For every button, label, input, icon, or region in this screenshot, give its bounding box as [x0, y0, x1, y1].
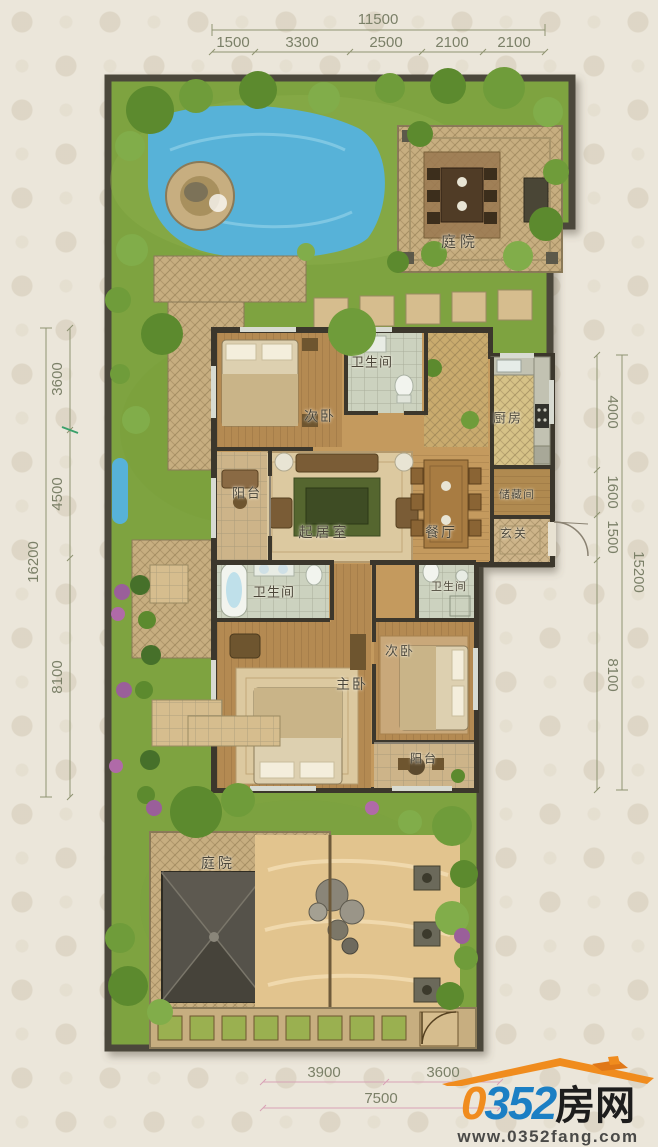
dim-left-seg: 4500 — [49, 477, 66, 510]
armchair — [270, 498, 292, 528]
sofa — [296, 454, 378, 472]
dim-right-total: 15200 — [630, 551, 647, 593]
balcony-mid — [217, 452, 267, 562]
logo-url: www.0352fang.com — [440, 1127, 656, 1147]
dimensions-top: 11500 1500 3300 2500 2100 2100 — [209, 11, 548, 55]
dresser — [350, 634, 366, 670]
room-label-balcony-mid: 阳台 — [232, 483, 262, 502]
armchair — [230, 634, 260, 658]
entrance-door — [548, 522, 588, 556]
stream — [112, 458, 128, 524]
room-label-bedroom-upper: 次卧 — [304, 406, 336, 426]
dim-right-seg: 8100 — [604, 658, 621, 691]
master-bedroom — [217, 622, 371, 788]
room-label-bath-upper: 卫生间 — [351, 352, 393, 371]
room-label-balcony-lower: 阳台 — [410, 750, 438, 767]
bottom-walkway — [150, 1008, 476, 1048]
dim-top-seg: 3300 — [285, 34, 318, 51]
logo-text: 00352352房网 — [440, 1080, 656, 1126]
watermark-logo: 00352352房网 www.0352fang.com — [440, 1056, 656, 1147]
sand-garden — [255, 835, 460, 1007]
stove — [535, 404, 549, 428]
dim-left-total: 16200 — [25, 541, 42, 583]
garden-gate — [420, 1012, 458, 1046]
stone-platforms — [414, 866, 440, 1002]
dimensions-left: 16200 3600 4500 8100 — [25, 325, 78, 800]
dim-right-seg: 1500 — [604, 520, 621, 553]
room-label-bath-lower-right: 卫生间 — [431, 578, 467, 594]
fridge — [534, 446, 550, 464]
dim-left-seg: 3600 — [49, 362, 66, 395]
fountain-rock — [184, 182, 208, 202]
room-label-courtyard-bottom: 庭院 — [201, 853, 235, 873]
room-label-kitchen: 厨房 — [493, 408, 523, 427]
room-label-bedroom-lower: 次卧 — [385, 641, 415, 660]
dim-right-seg: 1600 — [604, 475, 621, 508]
dimensions-right: 4000 1600 1500 8100 15200 — [594, 352, 647, 793]
side-table — [395, 453, 413, 471]
dim-top-seg: 1500 — [216, 34, 249, 51]
room-label-entry-hall: 玄关 — [500, 525, 528, 542]
room-label-storage: 储藏间 — [499, 486, 535, 502]
floor-plan-page: 11500 1500 3300 2500 2100 2100 16200 360… — [0, 0, 658, 1132]
logo-zero: 0 — [461, 1077, 485, 1129]
dim-top-seg: 2500 — [369, 34, 402, 51]
kitchen-sink — [497, 360, 521, 372]
pavilion — [162, 872, 266, 1002]
dim-top-seg: 2100 — [435, 34, 468, 51]
dim-left-seg: 8100 — [49, 660, 66, 693]
coffee-table — [306, 488, 368, 524]
outdoor-dining-set — [424, 152, 500, 238]
toilet — [395, 375, 413, 397]
floor-plan-graphic: 11500 1500 3300 2500 2100 2100 16200 360… — [0, 0, 658, 1132]
side-table — [275, 453, 293, 471]
logo-suffix: 房网 — [555, 1083, 635, 1129]
room-label-living-room: 起居室 — [299, 522, 350, 542]
toilet — [306, 565, 322, 585]
dim-bottom-seg: 3900 — [307, 1064, 340, 1081]
logo-352: 352 — [484, 1077, 555, 1129]
dim-top-total: 11500 — [358, 11, 399, 28]
room-label-bath-lower-left: 卫生间 — [253, 582, 295, 601]
dim-top-seg: 2100 — [497, 34, 530, 51]
dim-right-seg: 4000 — [604, 395, 621, 428]
bedroom-upper — [217, 333, 342, 447]
room-label-master-bedroom: 主卧 — [336, 674, 368, 694]
fountain-splash — [209, 194, 227, 212]
foyer — [424, 333, 488, 447]
room-label-dining-room: 餐厅 — [425, 522, 457, 542]
room-label-courtyard-top: 庭院 — [441, 231, 479, 252]
pond — [148, 105, 385, 258]
dim-bottom-total: 7500 — [364, 1090, 397, 1107]
